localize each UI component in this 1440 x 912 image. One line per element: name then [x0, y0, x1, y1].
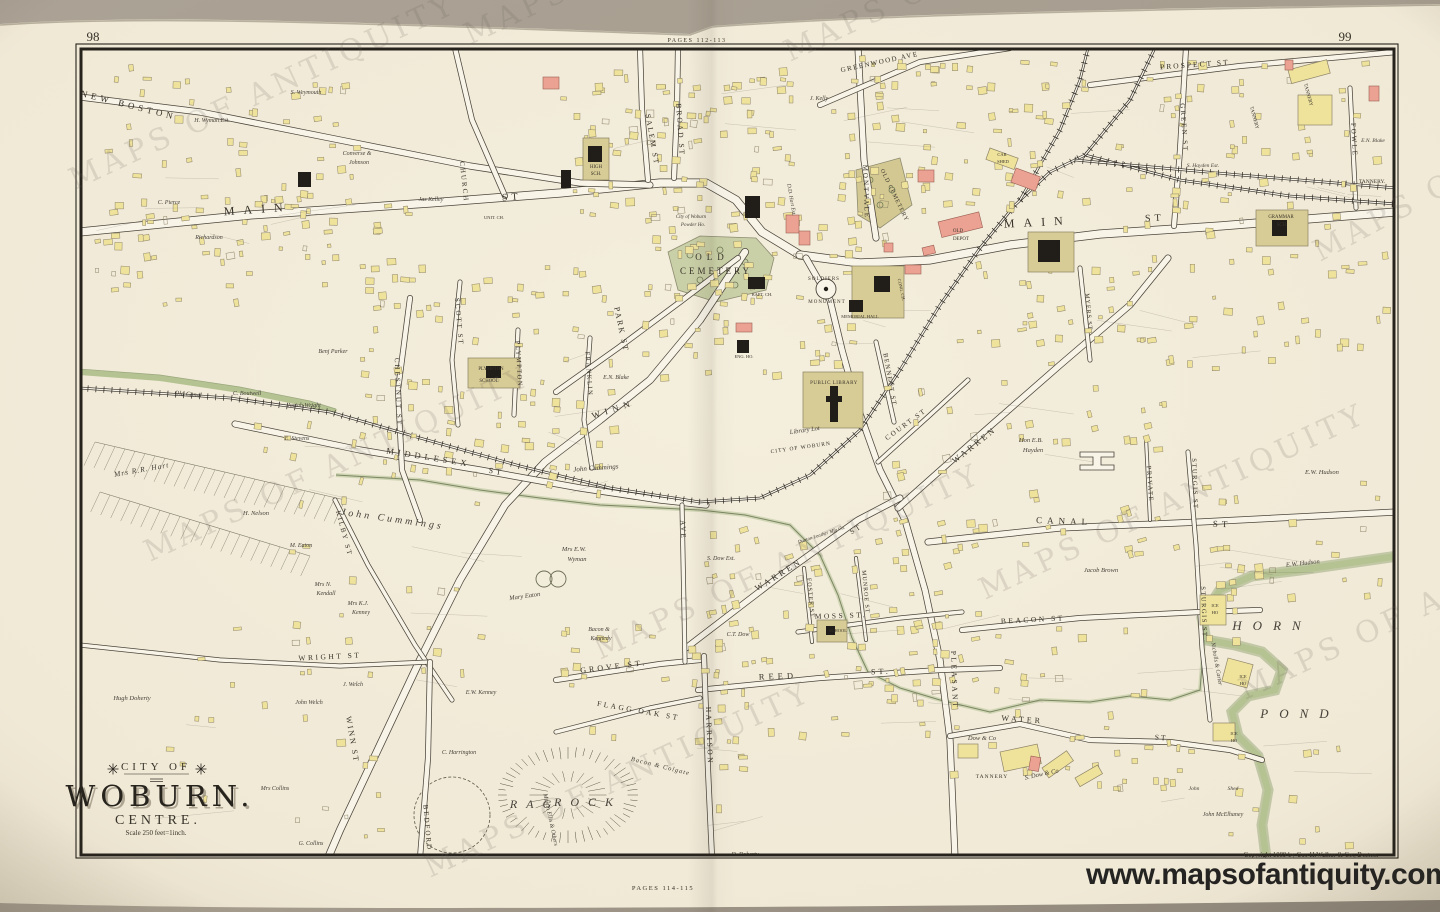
photo-vignette: [0, 0, 1440, 912]
antique-map-photo: NEW BOSTONMAINSTCHURCHSALEM STBROAD STMO…: [0, 0, 1440, 912]
woburn-centre-map: NEW BOSTONMAINSTCHURCHSALEM STBROAD STMO…: [0, 0, 1440, 912]
